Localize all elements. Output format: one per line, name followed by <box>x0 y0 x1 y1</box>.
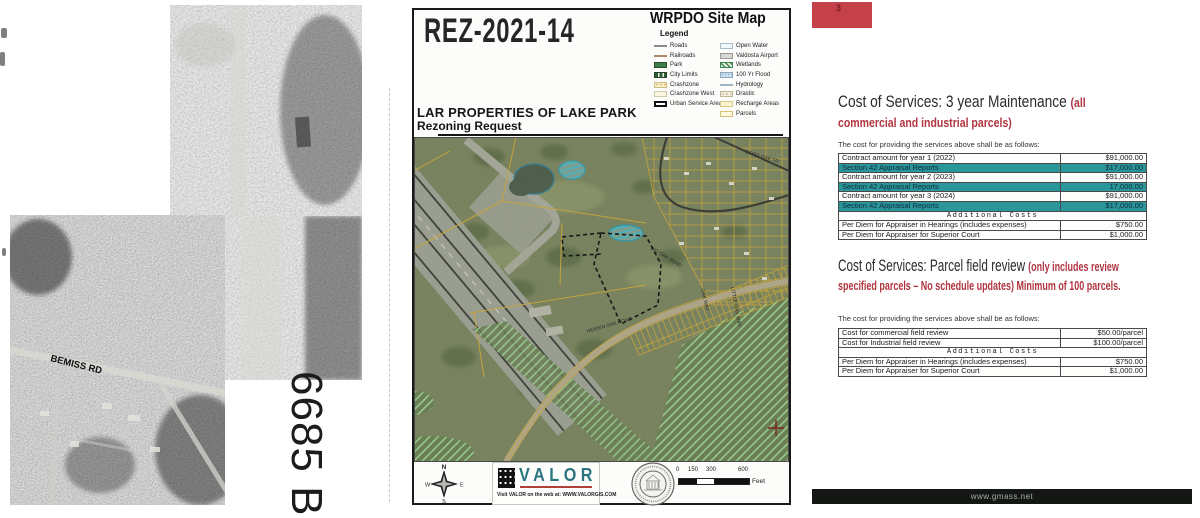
legend-swatch-parcels <box>720 111 733 117</box>
legend-label: Hydrology <box>736 82 763 88</box>
legend-swatch-crashzone-west <box>654 91 667 97</box>
scale-tick: 150 <box>688 467 698 473</box>
legend-item-100yr-flood: 100 Yr Flood <box>720 70 779 80</box>
cell-label: Section 42 Appraisal Reports <box>839 201 1061 211</box>
legend-item-park: Park <box>654 60 722 70</box>
scale-tick: 300 <box>706 467 716 473</box>
table-row: Contract amount for year 2 (2023)$91,000… <box>839 173 1147 183</box>
rotated-address-caption: 6685 Bemiss <box>281 371 331 518</box>
cell-label: Contract amount for year 1 (2022) <box>839 154 1061 164</box>
legend-label: Crashzone West <box>670 91 714 97</box>
table-row-highlighted: Section 42 Appraisal Reports$17,000.00 <box>839 163 1147 173</box>
legend-label: Drastic <box>736 91 755 97</box>
valor-gis-icon <box>498 468 515 488</box>
table-row: Cost for Industrial field review$100.00/… <box>839 338 1147 348</box>
compass-s: S <box>442 499 446 504</box>
table-subheader-row: Additional Costs <box>839 348 1147 358</box>
scale-tick: 0 <box>676 467 679 473</box>
title-underline <box>438 134 783 136</box>
cell-value: $750.00 <box>1061 221 1147 231</box>
legend-swatch-wetlands <box>720 62 733 68</box>
legend-label: Recharge Areas <box>736 101 779 107</box>
table-row: Per Diem for Appraiser in Hearings (incl… <box>839 221 1147 231</box>
intro-paragraph: The cost for providing the services abov… <box>838 140 1040 149</box>
cell-value: $1,000.00 <box>1061 230 1147 240</box>
legend-label: Railroads <box>670 53 695 59</box>
legend-swatch-roads <box>654 45 667 47</box>
legend-label: Crashzone <box>670 82 699 88</box>
table-row: Per Diem for Appraiser in Hearings (incl… <box>839 357 1147 367</box>
legend-label: Open Water <box>736 43 768 49</box>
cell-value: $750.00 <box>1061 357 1147 367</box>
subheader-cell: Additional Costs <box>839 348 1147 358</box>
legend-item-crashzone-west: Crashzone West <box>654 89 722 99</box>
section-heading-maintenance: Cost of Services: 3 year Maintenance (al… <box>838 92 1138 133</box>
legend-swatch-city-limits <box>654 72 667 78</box>
legend-swatch-valdosta-airport <box>720 53 733 59</box>
legend-item-wetlands: Wetlands <box>720 60 779 70</box>
cell-value: $91,000.00 <box>1061 173 1147 183</box>
legend-swatch-recharge-areas <box>720 101 733 107</box>
table-row: Contract amount for year 1 (2022)$91,000… <box>839 154 1147 164</box>
site-map-image: MOSS OAK TR BIG OAK BEND OAK WAY LITTLE … <box>414 137 789 462</box>
cell-value: $91,000.00 <box>1061 192 1147 202</box>
applicant-name: LAR PROPERTIES OF LAKE PARK <box>417 105 637 120</box>
section-heading-parcel-review: Cost of Services: Parcel field review (o… <box>838 256 1155 295</box>
cell-value: $91,000.00 <box>1061 154 1147 164</box>
legend-column-left: Roads Railroads Park City Limits Crashzo… <box>654 41 722 109</box>
legend-swatch-railroads <box>654 55 667 57</box>
legend-label: Urban Service Area <box>670 101 722 107</box>
valor-logo-box: VALOR Visit VALOR on the web at: WWW.VAL… <box>492 462 600 505</box>
street-photo-rotated-top <box>170 5 362 216</box>
county-seal-icon <box>630 461 676 507</box>
table-row: Cost for commercial field review$50.00/p… <box>839 329 1147 339</box>
legend-swatch-crashzone <box>654 82 667 88</box>
compass-w: W <box>425 483 431 489</box>
legend-label: Park <box>670 62 682 68</box>
scan-smudge <box>1 28 7 38</box>
site-map-document: REZ-2021-14 WRPDO Site Map Legend Roads … <box>412 8 791 505</box>
footer-url: www.gmass.net <box>971 492 1034 501</box>
legend-label: City Limits <box>670 72 698 78</box>
cell-value: $17,000.00 <box>1061 201 1147 211</box>
legend-item-parcels: Parcels <box>720 109 779 119</box>
cell-label: Per Diem for Appraiser in Hearings (incl… <box>839 221 1061 231</box>
request-type: Rezoning Request <box>417 119 522 133</box>
cell-label: Per Diem for Appraiser for Superior Cour… <box>839 230 1061 240</box>
legend-item-open-water: Open Water <box>720 41 779 51</box>
scanned-page: BEMISS RD 6685 Bemiss REZ-2021-14 WRPDO … <box>0 0 1200 518</box>
legend-item-crashzone: Crashzone <box>654 80 722 90</box>
cell-value: $100.00/parcel <box>1061 338 1147 348</box>
scale-segment <box>679 479 697 484</box>
legend-title: Legend <box>660 29 688 38</box>
valor-wordmark: VALOR <box>519 465 597 486</box>
legend-item-roads: Roads <box>654 41 722 51</box>
footer-url-bar: www.gmass.net <box>812 489 1192 504</box>
page-number: 3 <box>836 3 841 13</box>
legend-item-hydrology: Hydrology <box>720 80 779 90</box>
valor-web-line: Visit VALOR on the web at: WWW.VALORGIS.… <box>497 492 616 498</box>
scale-bar-segments <box>678 478 750 485</box>
parcel-review-cost-table: Cost for commercial field review$50.00/p… <box>838 328 1147 377</box>
case-number: REZ-2021-14 <box>424 12 575 51</box>
valor-tagline-strip <box>520 486 592 488</box>
compass-n: N <box>442 464 447 471</box>
cell-label: Cost for Industrial field review <box>839 338 1061 348</box>
scale-bar: 0 150 300 600 Feet <box>674 467 784 497</box>
legend-column-right: Open Water Valdosta Airport Wetlands 100… <box>720 41 779 119</box>
legend-item-city-limits: City Limits <box>654 70 722 80</box>
cell-label: Contract amount for year 2 (2023) <box>839 173 1061 183</box>
cell-value: 17,000.00 <box>1061 182 1147 192</box>
aerial-photo: BEMISS RD <box>10 215 225 505</box>
cell-label: Contract amount for year 3 (2024) <box>839 192 1061 202</box>
scale-segment <box>697 479 715 484</box>
cell-label: Per Diem for Appraiser in Hearings (incl… <box>839 357 1061 367</box>
legend-swatch-hydrology <box>720 84 733 86</box>
table-row: Per Diem for Appraiser for Superior Cour… <box>839 367 1147 377</box>
page-number-tab: 3 <box>812 2 872 28</box>
legend-label: Valdosta Airport <box>736 53 778 59</box>
table-row: Contract amount for year 3 (2024)$91,000… <box>839 192 1147 202</box>
table-row-highlighted: Section 42 Appraisal Reports17,000.00 <box>839 182 1147 192</box>
legend-label: Parcels <box>736 111 756 117</box>
table-row: Per Diem for Appraiser for Superior Cour… <box>839 230 1147 240</box>
legend-item-railroads: Railroads <box>654 51 722 61</box>
legend-swatch-drastic <box>720 91 733 97</box>
cell-value: $1,000.00 <box>1061 367 1147 377</box>
legend-swatch-urban-service-area <box>654 101 667 107</box>
subheader-cell: Additional Costs <box>839 211 1147 221</box>
legend-label: Wetlands <box>736 62 761 68</box>
intro-paragraph: The cost for providing the services abov… <box>838 314 1040 323</box>
cell-label: Cost for commercial field review <box>839 329 1061 339</box>
legend-swatch-100yr-flood <box>720 72 733 78</box>
legend-swatch-park <box>654 62 667 68</box>
cell-value: $50.00/parcel <box>1061 329 1147 339</box>
table-row-highlighted: Section 42 Appraisal Reports$17,000.00 <box>839 201 1147 211</box>
cell-value: $17,000.00 <box>1061 163 1147 173</box>
compass-rose-icon: N W E S <box>422 462 466 504</box>
cell-label: Section 42 Appraisal Reports <box>839 163 1061 173</box>
scale-tick: 600 <box>738 467 748 473</box>
scan-smudge <box>2 248 6 256</box>
map-title: WRPDO Site Map <box>650 10 766 28</box>
table-subheader-row: Additional Costs <box>839 211 1147 221</box>
cell-label: Section 42 Appraisal Reports <box>839 182 1061 192</box>
legend-item-recharge-areas: Recharge Areas <box>720 99 779 109</box>
page-fold-line <box>389 88 390 502</box>
scan-smudge <box>0 52 5 66</box>
street-photo-rotated-bottom <box>223 216 362 380</box>
heading-text: Cost of Services: Parcel field review <box>838 256 1025 275</box>
legend-label: 100 Yr Flood <box>736 72 770 78</box>
scale-unit: Feet <box>752 478 765 485</box>
scale-segment <box>714 479 749 484</box>
compass-e: E <box>460 483 464 489</box>
maintenance-cost-table: Contract amount for year 1 (2022)$91,000… <box>838 153 1147 240</box>
legend-swatch-open-water <box>720 43 733 49</box>
legend-item-drastic: Drastic <box>720 89 779 99</box>
legend-item-urban-service-area: Urban Service Area <box>654 99 722 109</box>
heading-text: Cost of Services: 3 year Maintenance <box>838 92 1067 111</box>
cell-label: Per Diem for Appraiser for Superior Cour… <box>839 367 1061 377</box>
legend-label: Roads <box>670 43 687 49</box>
legend-item-valdosta-airport: Valdosta Airport <box>720 51 779 61</box>
